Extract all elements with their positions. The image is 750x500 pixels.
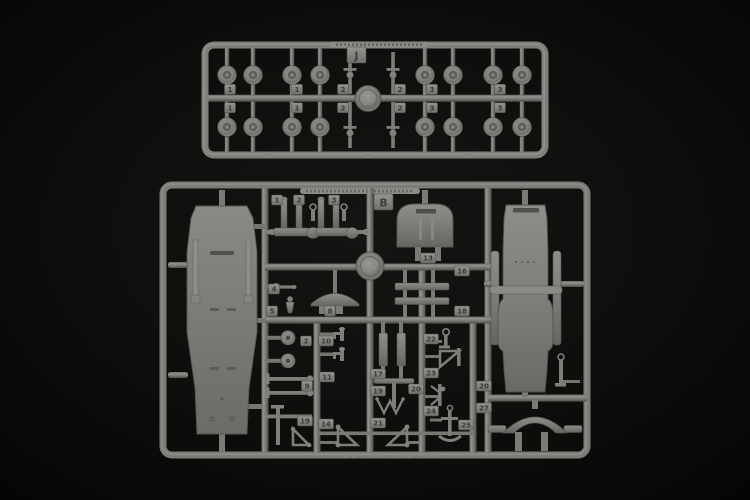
sprue-shape: [287, 296, 293, 302]
sprue-letter-tag-j: J: [347, 47, 366, 63]
sprue-shape: [498, 205, 553, 392]
gate-nub: [371, 454, 375, 459]
road-wheel-part: [416, 118, 435, 137]
sprue-shape: [488, 426, 506, 433]
part-number-tag: 21: [371, 418, 386, 428]
gate-nub: [352, 454, 356, 459]
part-number-tag: 1: [292, 84, 303, 94]
sprue-shape: [392, 43, 394, 46]
part-number-tag: 19: [298, 416, 313, 426]
sprue-shape: [227, 308, 236, 311]
sprue-shape: 5: [270, 308, 275, 316]
sprue-shape: [431, 218, 434, 240]
sprue-shape: [396, 43, 398, 46]
gate-nub: [465, 154, 472, 158]
sprue-shape: [219, 190, 225, 208]
sprue-shape: [362, 229, 370, 235]
sprue-shape: 11: [322, 374, 332, 382]
letter-tag-text: J: [354, 51, 359, 63]
sprue-shape: 4: [272, 286, 277, 294]
sprue-shape: [390, 190, 392, 193]
photo-of-model-kit-sprues: 111122223333 J: [0, 0, 750, 500]
sprue-shape: [415, 247, 421, 261]
sprue-shape: [387, 126, 400, 129]
sprue-shape: [439, 346, 450, 349]
sprue-shape: [346, 190, 348, 193]
sprue-shape: [364, 43, 366, 46]
sprue-shape: 1: [228, 104, 233, 112]
gate-nub: [365, 154, 372, 158]
sprue-shape: [360, 43, 362, 46]
sprue-shape: [403, 289, 407, 298]
sprue-shape: [441, 387, 446, 392]
road-wheel-part: [311, 66, 330, 85]
sprue-shape: [397, 333, 406, 366]
part-number-tag: 27: [477, 403, 492, 413]
sprue-shape: [401, 397, 405, 401]
sprue-shape: [333, 270, 337, 294]
sprue-shape: [491, 73, 494, 76]
gate-nub: [435, 454, 439, 459]
part-number-tag: 23: [424, 368, 439, 378]
sprue-shape: 3: [498, 104, 503, 112]
sprue-shape: [322, 190, 324, 193]
sprue-shape: 2: [341, 86, 346, 94]
sprue-shape: [356, 43, 358, 46]
logo-disc: [356, 252, 384, 280]
sprue-shape: [344, 43, 346, 46]
sprue-shape: [225, 125, 228, 128]
sprue-shape: [225, 73, 228, 76]
sprue-shape: 20: [479, 383, 489, 391]
sprue-shape: [425, 355, 439, 358]
sprue-shape: [227, 367, 236, 370]
sprue-shape: [340, 43, 342, 46]
part-number-tag: 2: [395, 84, 406, 94]
sprue-shape: [347, 130, 354, 137]
gate-nub: [427, 454, 431, 459]
sprue-shape: [291, 427, 295, 431]
sprue-shape: [316, 228, 350, 236]
sprue-shape: [398, 190, 400, 193]
sprue-shape: [350, 190, 352, 193]
sprue-shape: [276, 406, 280, 445]
sprue-shape: [406, 190, 408, 193]
sprue-shape: [333, 354, 336, 359]
sprue-photo-canvas: 111122223333 J: [0, 0, 750, 500]
sprue-shape: [388, 43, 390, 46]
sprue-shape: [168, 372, 188, 378]
sprue-shape: 18: [457, 308, 467, 316]
road-wheel-part: [444, 66, 463, 85]
sprue-shape: [339, 347, 345, 351]
sprue-shape: 3: [498, 86, 503, 94]
sprue-shape: [290, 125, 293, 128]
sprue-shape: [399, 322, 403, 334]
sprue-shape: [266, 391, 309, 395]
sprue-shape: [441, 417, 458, 420]
sprue-shape: [555, 383, 566, 387]
sprue-shape: [253, 224, 265, 229]
part-number-tag: 20: [477, 381, 492, 391]
sprue-shape: [416, 43, 418, 46]
sprue-shape: [326, 190, 328, 193]
part-number-tag: 3: [427, 84, 438, 94]
shield-slot: [416, 209, 436, 214]
sprue-shape: [438, 384, 442, 406]
sprue-shape: [423, 125, 426, 128]
sprue-shape: [265, 336, 282, 340]
gate-nub: [399, 454, 403, 459]
part-number-tag: 3: [495, 103, 506, 113]
sprue-shape: [527, 261, 529, 263]
sprue-shape: [219, 432, 225, 452]
sprue-shape: [430, 419, 442, 422]
sprue-shape: [306, 190, 308, 193]
sprue-shape: 19: [300, 418, 310, 426]
sprue-shape: 9: [305, 383, 310, 391]
part-number-tag: 1: [225, 103, 236, 113]
sprue-shape: [210, 367, 219, 370]
part-number-tag: 2: [338, 103, 349, 113]
sprue-shape: [376, 43, 378, 46]
sprue-shape: [336, 306, 343, 314]
part-number-tag: 2: [395, 103, 406, 113]
part-number-tag: 5: [267, 306, 278, 316]
sprue-shape: 2: [398, 86, 403, 94]
sprue-shape: 14: [321, 421, 331, 429]
part-number-tag: 25: [459, 420, 474, 430]
sprue-shape: [344, 68, 357, 71]
sprue-shape: [265, 359, 282, 363]
part-number-tag: 11: [320, 372, 335, 382]
sprue-shape: [336, 43, 338, 46]
sprue-shape: [352, 43, 354, 46]
sprue-shape: [405, 443, 410, 448]
sprue-shape: [403, 304, 407, 317]
sprue-shape: [563, 380, 580, 383]
sprue-shape: [559, 360, 563, 384]
sprue-shape: [168, 262, 188, 268]
sprue-shape: [457, 348, 461, 366]
sprue-shape: [310, 190, 312, 193]
part-number-tag: 22: [424, 334, 439, 344]
sprue-shape: [532, 400, 538, 409]
part-number-tag: 8: [325, 306, 336, 316]
sprue-shape: [374, 190, 376, 193]
sprue-shape: [394, 190, 396, 193]
part-number-tag: 2: [338, 84, 349, 94]
sprue-shape: [403, 270, 407, 284]
cradle-flange: [553, 251, 561, 345]
sprue-shape: 2: [297, 197, 302, 205]
sprue-shape: [404, 43, 406, 46]
letter-tag-text: B: [379, 198, 387, 210]
sprue-shape: 16: [457, 268, 467, 276]
road-wheel-part: [416, 66, 435, 85]
sprue-shape: [522, 190, 528, 206]
sprue-shape: [251, 73, 254, 76]
part-number-tag: 18: [455, 306, 470, 316]
part-number-tag: 14: [319, 419, 334, 429]
road-wheel-part: [244, 118, 263, 137]
sprue-shape: [431, 289, 435, 298]
part-number-tag: 3: [495, 84, 506, 94]
sprue-shape: [395, 298, 449, 305]
part-number-tag: 2: [294, 195, 305, 205]
sprue-shape: [318, 73, 321, 76]
cradle-strap: [490, 286, 562, 294]
sprue-shape: [354, 190, 356, 193]
sprue-shape: [339, 327, 345, 331]
sprue-shape: [515, 432, 522, 451]
sprue-shape: 3: [332, 197, 337, 205]
sprue-shape: 8: [328, 308, 333, 316]
gate-nub: [265, 154, 272, 158]
sprue-shape: [451, 73, 454, 76]
sprue-shape: [444, 335, 448, 346]
gate-nub: [407, 454, 411, 459]
road-wheel-part: [444, 118, 463, 137]
vertical-rail: [419, 264, 426, 453]
part-number-tag: 1: [292, 103, 303, 113]
sprue-shape: [362, 190, 364, 193]
sprue-shape: [423, 73, 426, 76]
sprue-shape: [520, 125, 523, 128]
sprue-shape: [384, 43, 386, 46]
sprue-shape: [342, 209, 346, 221]
sprue-shape: [425, 395, 438, 398]
sprue-shape: 17: [373, 371, 383, 379]
sprue-shape: 24: [426, 408, 436, 416]
sprue-shape: [515, 261, 517, 263]
part-number-tag: 3: [427, 103, 438, 113]
road-wheel-part: [513, 66, 532, 85]
sprue-shape: [346, 228, 358, 239]
sprue-letter-tag-b: B: [374, 194, 393, 210]
sprue-shape: [247, 404, 263, 409]
part-number-tag: 10: [319, 336, 334, 346]
part-number-tag: 1: [272, 195, 283, 205]
sprue-shape: [372, 43, 374, 46]
part-number-tag: 1: [225, 84, 236, 94]
sprue-shape: [314, 190, 316, 193]
sprue-shape: [395, 283, 449, 290]
sprue-shape: [251, 125, 254, 128]
horizontal-rail: [265, 317, 491, 324]
sprue-shape: [274, 228, 310, 236]
sprue-shape: [412, 43, 414, 46]
sprue-shape: 27: [479, 405, 489, 413]
sprue-shape: [220, 397, 223, 400]
side-rub-strip: [193, 240, 198, 298]
sprue-shape: [368, 43, 370, 46]
road-wheel-part: [218, 118, 237, 137]
sprue-shape: [386, 190, 388, 193]
cradle-slot: [513, 208, 539, 213]
sprue-shape: 25: [461, 422, 471, 430]
sprue-shape: [286, 359, 290, 363]
part-number-tag: 16: [455, 266, 470, 276]
part-number-tag: 24: [424, 406, 439, 416]
sprue-shape: [336, 425, 341, 430]
sprue-shape: [520, 73, 523, 76]
road-wheel-part: [513, 118, 532, 137]
sprue-shape: [431, 304, 435, 317]
sprue-shape: 20: [411, 386, 421, 394]
sprue-shape: [320, 441, 338, 444]
sprue-shape: [336, 443, 341, 448]
sprue-shape: [405, 425, 410, 430]
sprue-shape: 3: [430, 86, 435, 94]
sprue-shape: [318, 125, 321, 128]
sprue-shape: [402, 190, 404, 193]
sprue-shape: 13: [423, 255, 433, 263]
sprue-shape: [334, 190, 336, 193]
sprue-shape: [381, 322, 385, 334]
sprue-shape: [348, 43, 350, 46]
sprue-shape: [344, 126, 357, 129]
sprue-shape: [387, 68, 400, 71]
sprue-shape: [320, 333, 334, 337]
sprue-shape: [435, 247, 441, 261]
sprue-shape: [342, 190, 344, 193]
sprue-shape: [375, 397, 379, 401]
sprue-shape: [347, 72, 354, 79]
deck-plank-part: [187, 206, 257, 434]
sprue-shape: [390, 130, 397, 137]
sprue-shape: 1: [295, 86, 300, 94]
gate-nub: [344, 454, 348, 459]
sprue-shape: 21: [373, 420, 383, 428]
part-number-tag: 3: [329, 195, 340, 205]
part-number-tag: 4: [269, 284, 280, 294]
sprue-shape: 2: [341, 104, 346, 112]
sprue-shape: [382, 190, 384, 193]
sprue-shape: [451, 125, 454, 128]
molded-text-ridge: [300, 188, 420, 194]
sprue-shape: 1: [275, 197, 280, 205]
sprue-shape: [358, 190, 360, 193]
sprue-shape: [378, 190, 380, 193]
molded-text-ridge: [330, 42, 428, 48]
sprue-shape: [266, 377, 309, 381]
sprue-shape: [244, 295, 253, 303]
sprue-shape: [448, 410, 452, 436]
sprue-shape: [292, 285, 297, 289]
sprue-shape: [380, 43, 382, 46]
side-rub-strip: [246, 240, 251, 298]
gate-nub: [379, 454, 383, 459]
road-wheel-part: [244, 66, 263, 85]
sprue-shape: 19: [373, 388, 383, 396]
sprue-shape: [431, 270, 435, 284]
sprue-shape: 23: [426, 370, 436, 378]
sprue-shape: [290, 73, 293, 76]
sprue-shape: 1: [295, 104, 300, 112]
sprue-shape: [541, 432, 548, 451]
road-wheel-part: [283, 118, 302, 137]
sprue-shape: [318, 190, 320, 193]
sprue-shape: [307, 443, 311, 447]
sprue-shape: 3: [430, 104, 435, 112]
road-wheel-part: [218, 66, 237, 85]
part-number-tag: 19: [371, 386, 386, 396]
sprue-shape: [390, 72, 397, 79]
sprue-shape: [408, 43, 410, 46]
deck-slot: [210, 251, 234, 255]
sprue-shape: 1: [228, 86, 233, 94]
sprue-shape: 22: [426, 336, 436, 344]
road-wheel-part: [484, 118, 503, 137]
part-number-tag: 2: [301, 336, 312, 346]
sprue-shape: [420, 43, 422, 46]
sprue-shape: [410, 190, 412, 193]
part-number-tag: 17: [371, 369, 386, 379]
sprue-shape: [338, 190, 340, 193]
sprue-shape: [379, 333, 388, 366]
sprue-shape: [191, 295, 200, 303]
sprue-shape: [311, 209, 315, 221]
sprue-shape: 10: [321, 338, 331, 346]
sprue-shape: [533, 261, 535, 263]
sprue-shape: [564, 426, 582, 433]
road-wheel-part: [283, 66, 302, 85]
road-wheel-part: [484, 66, 503, 85]
sprue-shape: 2: [398, 104, 403, 112]
sprue-shape: 2: [304, 338, 309, 346]
logo-disc: [355, 86, 381, 112]
sprue-shape: [318, 199, 324, 230]
part-number-tag: 13: [421, 253, 436, 263]
sprue-shape: [400, 43, 402, 46]
part-number-tag: 20: [409, 384, 424, 394]
sprue-shape: [521, 261, 523, 263]
sprue-shape: [419, 218, 422, 240]
sprue-shape: [286, 336, 290, 340]
sprue-shape: [330, 190, 332, 193]
road-wheel-part: [311, 118, 330, 137]
sprue-shape: [491, 125, 494, 128]
sprue-shape: [320, 353, 334, 357]
part-number-tag: 9: [302, 381, 313, 391]
sprue-shape: [210, 308, 219, 311]
